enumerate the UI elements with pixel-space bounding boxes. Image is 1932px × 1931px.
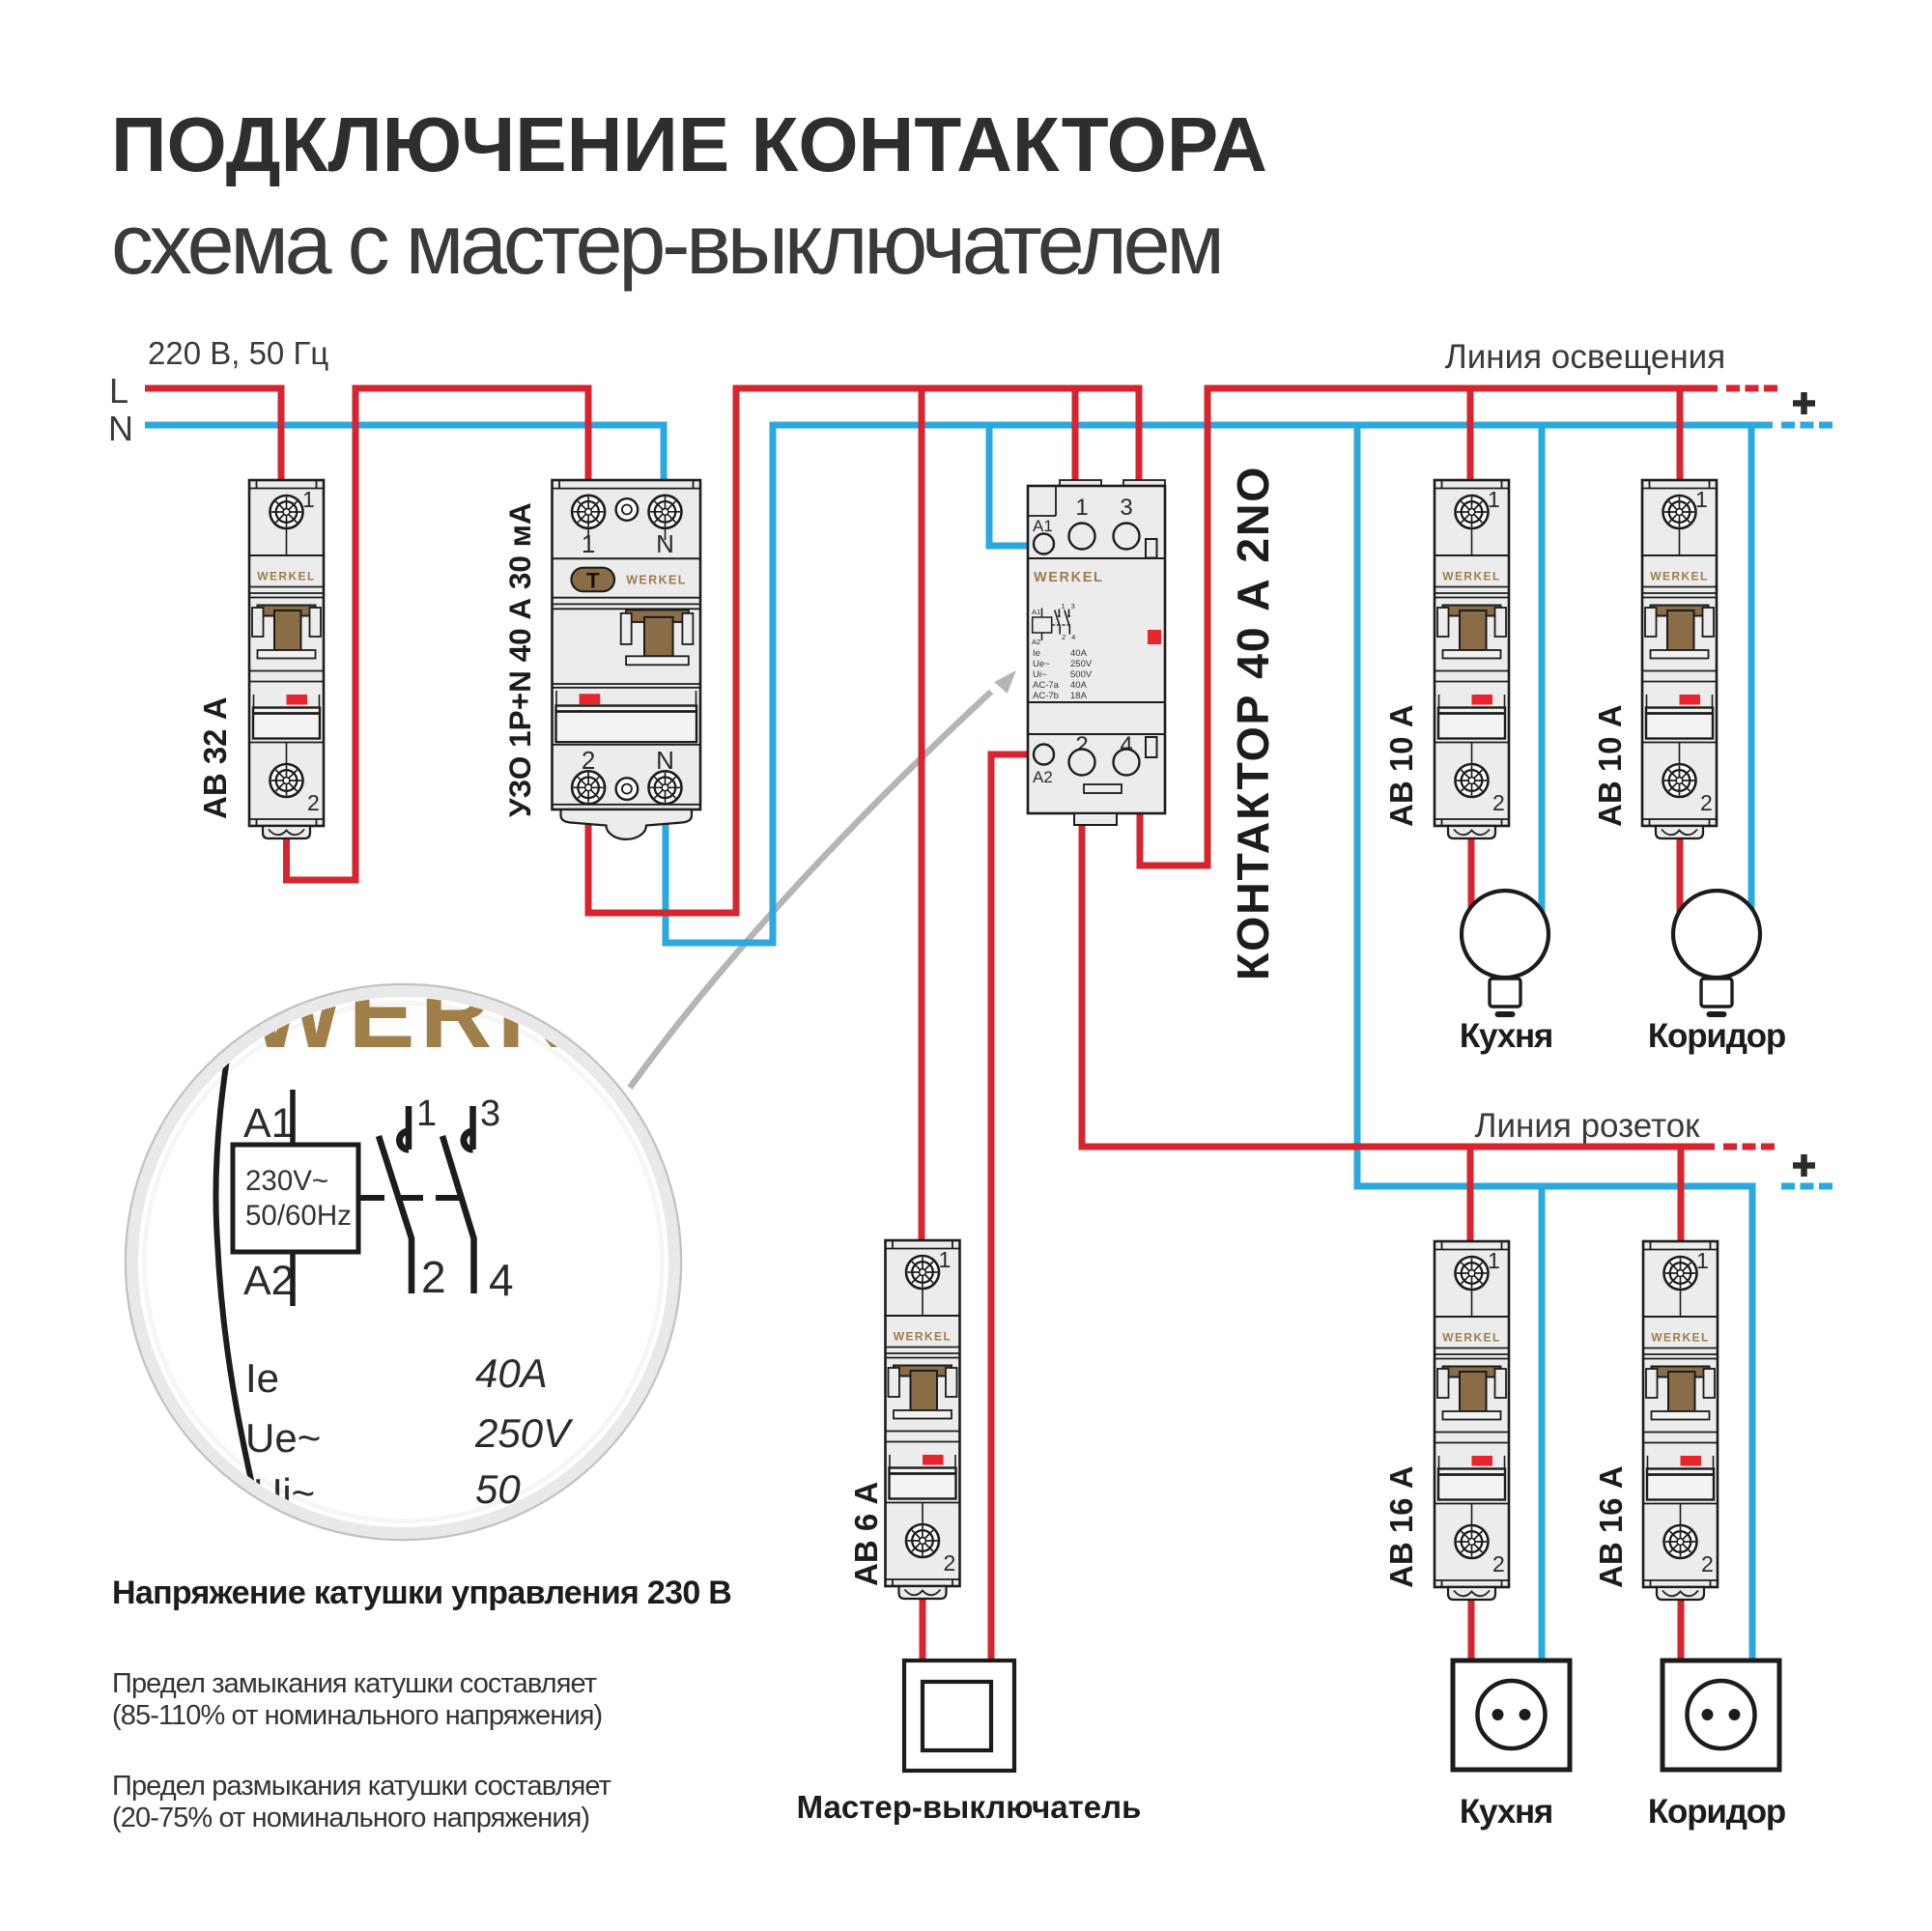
svg-text:4: 4: [1071, 633, 1075, 641]
svg-text:3: 3: [1120, 495, 1132, 521]
svg-text:230V~: 230V~: [245, 1165, 328, 1197]
svg-text:Коридор: Коридор: [1648, 1793, 1785, 1831]
svg-text:Мастер-выключатель: Мастер-выключатель: [797, 1789, 1142, 1825]
svg-text:40A: 40A: [475, 1350, 548, 1396]
svg-text:Ue~: Ue~: [245, 1415, 321, 1461]
svg-text:Кухня: Кухня: [1460, 1793, 1552, 1831]
svg-text:3: 3: [480, 1093, 500, 1134]
svg-text:500V: 500V: [1070, 669, 1093, 680]
svg-text:АВ 10 А: АВ 10 А: [1592, 704, 1628, 827]
svg-text:Ie: Ie: [1033, 648, 1040, 659]
svg-text:T: T: [586, 569, 600, 593]
svg-text:АВ 32 А: АВ 32 А: [197, 696, 233, 819]
svg-text:A2: A2: [1032, 638, 1040, 646]
svg-text:A1: A1: [1033, 517, 1053, 535]
svg-text:220 В, 50 Гц: 220 В, 50 Гц: [148, 335, 328, 371]
svg-text:1: 1: [582, 529, 595, 558]
svg-text:AC-7b: AC-7b: [1033, 691, 1059, 701]
svg-text:АВ 16 А: АВ 16 А: [1593, 1465, 1629, 1588]
svg-text:250V: 250V: [474, 1410, 574, 1456]
svg-text:3: 3: [1071, 602, 1075, 611]
svg-text:Ie: Ie: [245, 1355, 279, 1401]
svg-text:УЗО 1P+N 40 А 30 мА: УЗО 1P+N 40 А 30 мА: [502, 502, 537, 817]
svg-text:A1: A1: [1032, 608, 1040, 616]
svg-text:Кухня: Кухня: [1460, 1017, 1552, 1055]
svg-text:40A: 40A: [1070, 680, 1088, 691]
svg-text:Напряжение катушки управления: Напряжение катушки управления 230 В: [112, 1575, 731, 1611]
svg-text:2: 2: [1062, 633, 1065, 641]
svg-text:Ui~: Ui~: [1033, 669, 1047, 680]
svg-text:АВ 10 А: АВ 10 А: [1383, 704, 1419, 827]
svg-text:схема с мастер-выключателем: схема с мастер-выключателем: [111, 196, 1221, 292]
svg-text:4: 4: [489, 1255, 514, 1305]
svg-text:N: N: [656, 529, 674, 558]
svg-text:АВ 16 А: АВ 16 А: [1383, 1465, 1419, 1588]
svg-text:Предел размыкания катушки сост: Предел размыкания катушки составляет: [112, 1771, 611, 1802]
svg-text:18A: 18A: [1070, 691, 1088, 701]
svg-text:N: N: [108, 409, 133, 448]
svg-text:1: 1: [1062, 602, 1065, 611]
svg-text:50/60Hz: 50/60Hz: [245, 1200, 352, 1232]
svg-text:КОНТАКТОР 40 А 2NO: КОНТАКТОР 40 А 2NO: [1228, 466, 1278, 980]
svg-text:АВ 6 А: АВ 6 А: [848, 1482, 884, 1586]
svg-text:WERKEL: WERKEL: [626, 574, 687, 587]
svg-text:ПОДКЛЮЧЕНИЕ КОНТАКТОРА: ПОДКЛЮЧЕНИЕ КОНТАКТОРА: [111, 101, 1267, 187]
svg-text:WERKEL: WERKEL: [1034, 570, 1103, 585]
svg-text:AC-7a: AC-7a: [1033, 680, 1060, 691]
svg-text:1: 1: [1075, 495, 1088, 521]
svg-text:Линия розеток: Линия розеток: [1475, 1107, 1701, 1145]
svg-text:40A: 40A: [1070, 648, 1088, 659]
svg-text:Ue~: Ue~: [1033, 659, 1050, 669]
svg-text:L: L: [109, 371, 128, 411]
svg-text:2: 2: [421, 1252, 446, 1302]
svg-text:Линия освещения: Линия освещения: [1445, 338, 1725, 376]
svg-text:250V: 250V: [1070, 659, 1093, 669]
svg-text:(85-110% от номинального напря: (85-110% от номинального напряжения): [112, 1700, 602, 1731]
svg-text:A2: A2: [243, 1258, 295, 1304]
svg-text:1: 1: [416, 1093, 437, 1134]
svg-text:Коридор: Коридор: [1648, 1017, 1785, 1055]
svg-text:A2: A2: [1033, 768, 1053, 786]
svg-text:(20-75% от номинального напряж: (20-75% от номинального напряжения): [112, 1803, 589, 1833]
svg-text:Предел замыкания катушки соста: Предел замыкания катушки составляет: [112, 1668, 597, 1699]
svg-text:A1: A1: [243, 1100, 295, 1147]
